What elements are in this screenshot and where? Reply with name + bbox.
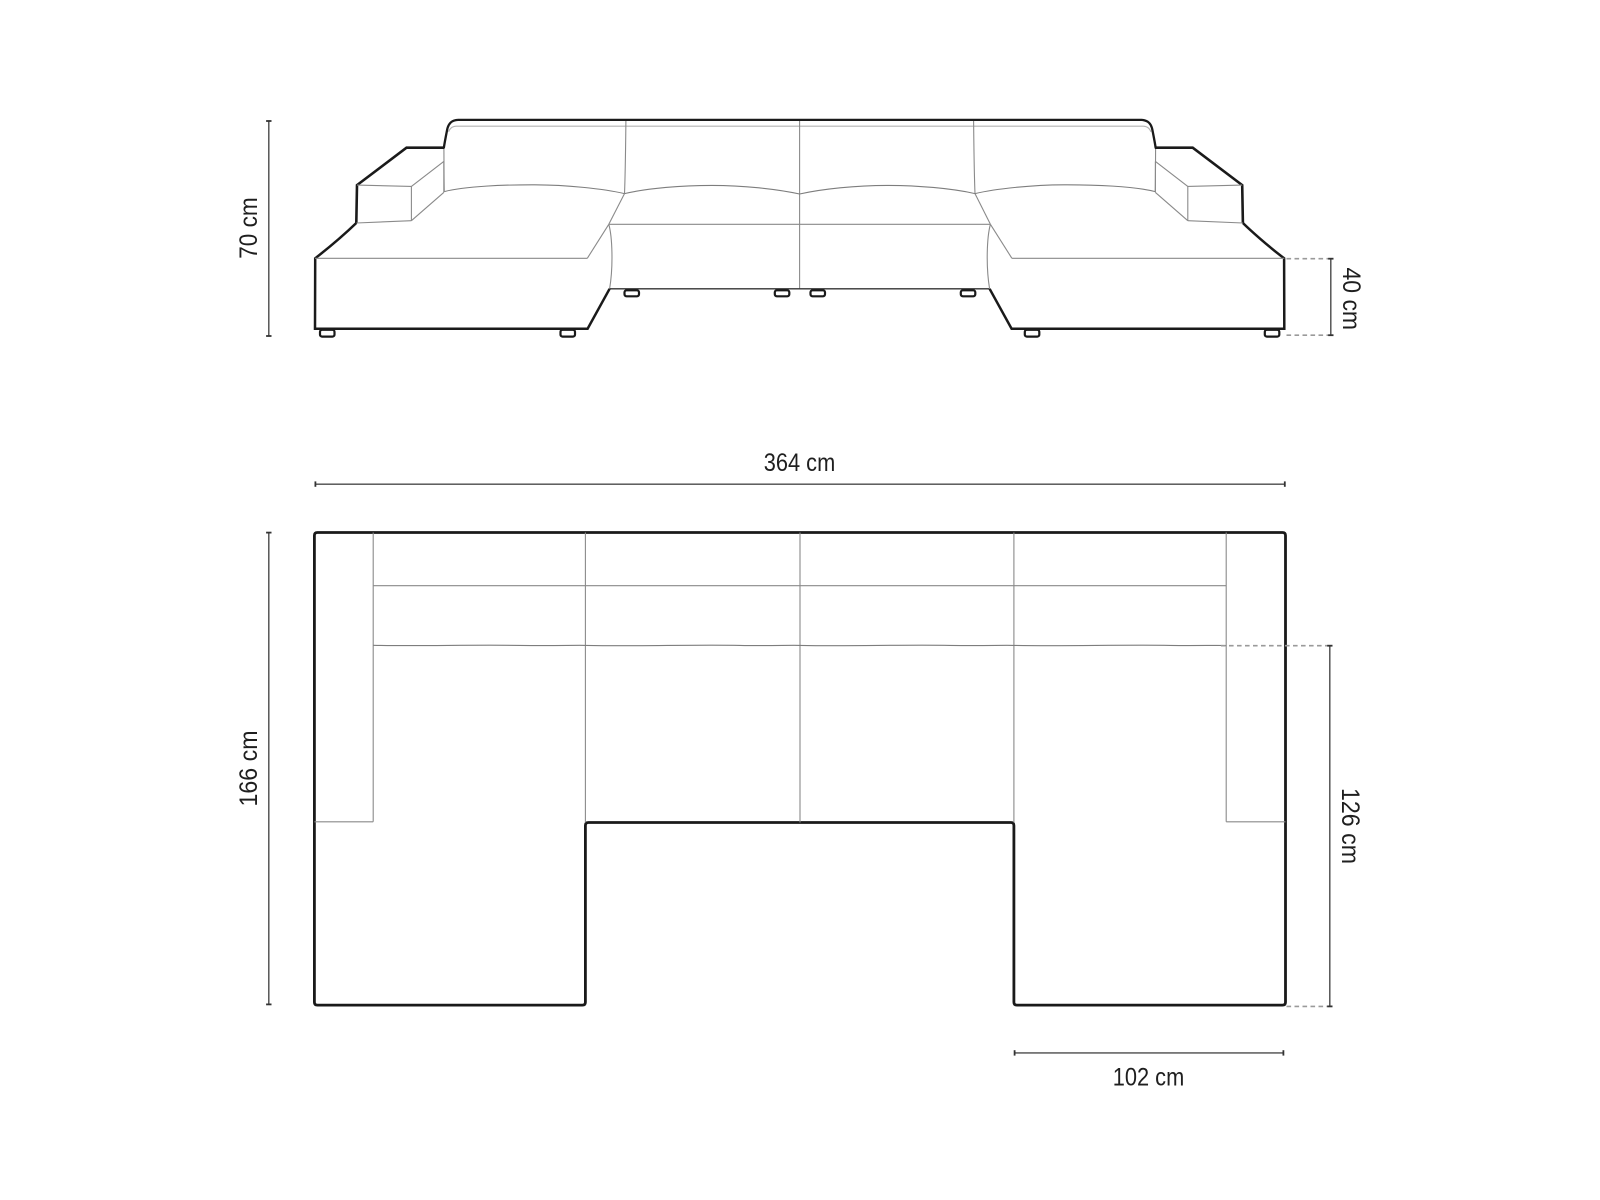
- svg-text:166 cm: 166 cm: [235, 731, 263, 807]
- svg-text:364 cm: 364 cm: [764, 449, 836, 477]
- svg-text:40 cm: 40 cm: [1337, 268, 1365, 331]
- svg-text:70 cm: 70 cm: [235, 197, 263, 259]
- svg-text:102 cm: 102 cm: [1113, 1064, 1185, 1092]
- svg-text:126 cm: 126 cm: [1336, 788, 1364, 864]
